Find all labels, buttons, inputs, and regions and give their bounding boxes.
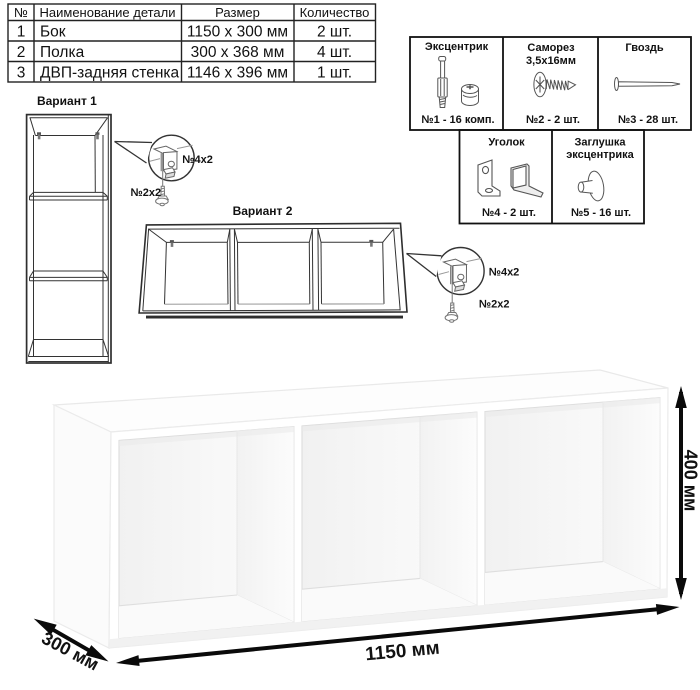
svg-text:400 мм: 400 мм bbox=[681, 450, 700, 512]
svg-text:Вариант 1: Вариант 1 bbox=[37, 94, 97, 108]
svg-text:№2 - 2 шт.: №2 - 2 шт. bbox=[526, 114, 580, 126]
svg-text:Гвоздь: Гвоздь bbox=[625, 42, 664, 54]
svg-text:№: № bbox=[14, 5, 28, 20]
svg-text:1 шт.: 1 шт. bbox=[317, 65, 352, 82]
svg-text:1146 х 396 мм: 1146 х 396 мм bbox=[187, 65, 288, 82]
svg-text:300 х 368 мм: 300 х 368 мм bbox=[191, 44, 285, 61]
svg-text:1150 мм: 1150 мм bbox=[364, 638, 440, 666]
svg-text:Заглушка: Заглушка bbox=[574, 137, 626, 149]
svg-text:Уголок: Уголок bbox=[488, 137, 525, 149]
svg-text:Вариант 2: Вариант 2 bbox=[233, 204, 293, 218]
svg-text:№3 - 28 шт.: №3 - 28 шт. bbox=[618, 114, 678, 126]
svg-text:Полка: Полка bbox=[40, 44, 85, 61]
svg-text:4 шт.: 4 шт. bbox=[317, 44, 352, 61]
svg-text:Наименование детали: Наименование детали bbox=[40, 5, 176, 20]
svg-text:№4х2: №4х2 bbox=[489, 267, 520, 279]
svg-text:№2х2: №2х2 bbox=[131, 187, 162, 199]
svg-text:Эксцентрик: Эксцентрик bbox=[425, 41, 489, 53]
svg-text:3: 3 bbox=[17, 65, 26, 82]
svg-text:№5 - 16 шт.: №5 - 16 шт. bbox=[571, 207, 631, 219]
svg-text:№4х2: №4х2 bbox=[182, 154, 213, 166]
svg-text:эксцентрика: эксцентрика bbox=[566, 149, 634, 161]
svg-text:1: 1 bbox=[17, 24, 26, 41]
svg-text:3,5х16мм: 3,5х16мм bbox=[526, 55, 576, 67]
svg-text:№2х2: №2х2 bbox=[479, 299, 510, 311]
svg-text:Саморез: Саморез bbox=[527, 42, 575, 54]
svg-text:Размер: Размер bbox=[215, 5, 260, 20]
svg-text:ДВП-задняя стенка: ДВП-задняя стенка bbox=[40, 65, 180, 82]
svg-text:2 шт.: 2 шт. bbox=[317, 24, 352, 41]
svg-text:№4 - 2 шт.: №4 - 2 шт. bbox=[482, 207, 536, 219]
svg-text:Количество: Количество bbox=[300, 5, 370, 20]
svg-text:1150 х 300 мм: 1150 х 300 мм bbox=[187, 24, 288, 41]
svg-text:Бок: Бок bbox=[40, 24, 66, 41]
svg-text:№1 - 16 комп.: №1 - 16 комп. bbox=[421, 114, 494, 126]
svg-text:2: 2 bbox=[17, 44, 26, 61]
